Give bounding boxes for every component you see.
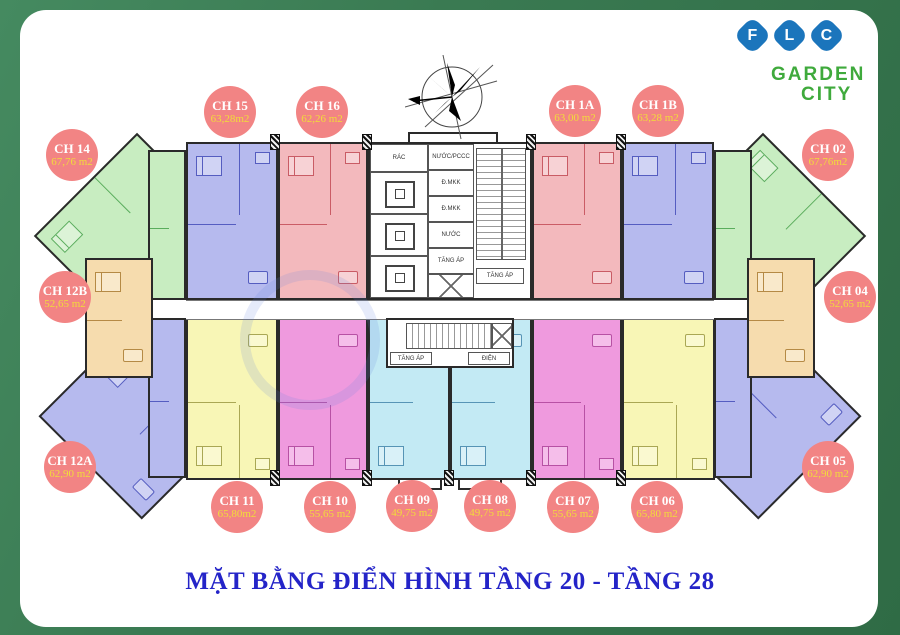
unit-badge-ch10: CH 1055,65 m2	[304, 481, 356, 533]
unit-id: CH 16	[304, 99, 340, 114]
unit-area: 62,26 m2	[301, 114, 343, 126]
bed-shape	[460, 446, 486, 466]
unit-area: 63,00 m2	[554, 113, 596, 125]
staircase	[406, 323, 492, 349]
unit-id: CH 14	[54, 142, 90, 157]
trash-room: RÁC	[370, 144, 428, 172]
partition-line	[370, 402, 413, 403]
unit-badge-ch09: CH 0949,75 m2	[386, 480, 438, 532]
unit-id: CH 12A	[47, 454, 92, 469]
unit-id: CH 1A	[556, 98, 595, 113]
logo-letter: F	[748, 27, 758, 45]
unit-id: CH 06	[639, 494, 675, 509]
core-bottom: TĂNG ÁP ĐIỆN	[386, 318, 514, 368]
bathroom-shape	[692, 458, 707, 470]
shaft-water-pccc: NƯỚC/PCCC	[428, 144, 474, 170]
unit-badge-ch16: CH 1662,26 m2	[296, 86, 348, 138]
partition-line	[749, 320, 784, 321]
core-top: RÁC NƯỚC/PCCC Đ.MKK Đ.MKK NƯỚC TĂNG ÁP T…	[368, 142, 532, 300]
partition-line	[716, 228, 735, 229]
partition-line	[786, 194, 822, 230]
pillar	[270, 134, 280, 150]
partition-line	[534, 224, 581, 225]
unit-badge-ch1b: CH 1B63,28 m2	[632, 85, 684, 137]
partition-line	[330, 144, 331, 215]
unit-badge-ch08: CH 0849,75 m2	[464, 480, 516, 532]
unit-id: CH 02	[810, 142, 846, 157]
unit-area: 63,28m2	[211, 114, 250, 126]
apartment-ch12b	[85, 258, 153, 378]
unit-badge-ch12a: CH 12A62,90 m2	[44, 441, 96, 493]
partition-line	[150, 228, 169, 229]
elevator-icon	[370, 214, 428, 256]
unit-area: 49,75 m2	[469, 508, 511, 520]
bathroom-shape	[599, 152, 614, 164]
logo-garden-text: GARDEN	[771, 64, 865, 86]
bed-shape	[95, 272, 121, 292]
unit-badge-ch05: CH 0562,90 m2	[802, 441, 854, 493]
bed-shape	[196, 156, 222, 176]
table-shape	[132, 478, 155, 501]
logo-city-text: CITY	[801, 84, 852, 106]
bed-shape	[51, 220, 84, 253]
electric-room: ĐIỆN	[468, 352, 510, 365]
unit-area: 52,65 m2	[829, 299, 871, 311]
unit-badge-ch02: CH 0267,76m2	[802, 129, 854, 181]
partition-line	[188, 402, 236, 403]
unit-badge-ch04: CH 0452,65 m2	[824, 271, 876, 323]
unit-id: CH 08	[472, 493, 508, 508]
apartment-ch1a	[532, 142, 622, 300]
watermark-ring	[240, 270, 380, 410]
pillar	[616, 134, 626, 150]
table-shape	[123, 349, 143, 362]
table-shape	[820, 403, 843, 426]
partition-line	[534, 402, 581, 403]
bed-shape	[288, 446, 314, 466]
unit-area: 62,90 m2	[49, 469, 91, 481]
partition-line	[624, 402, 673, 403]
table-shape	[592, 271, 612, 284]
logo-tile-l: L	[770, 16, 808, 54]
pressure-room: TĂNG ÁP	[476, 268, 524, 284]
unit-area: 55,65 m2	[309, 509, 351, 521]
unit-area: 65,80m2	[218, 509, 257, 521]
partition-line	[676, 405, 677, 478]
partition-line	[716, 401, 735, 402]
bathroom-shape	[255, 458, 270, 470]
staircase	[476, 148, 526, 260]
apartment-ch06	[622, 318, 715, 480]
unit-id: CH 12B	[43, 284, 87, 299]
unit-id: CH 1B	[639, 98, 677, 113]
logo-tile-f: F	[733, 16, 771, 54]
unit-area: 52,65 m2	[44, 299, 86, 311]
shaft-dmkk: Đ.MKK	[428, 170, 474, 196]
pillar	[362, 470, 372, 486]
partition-line	[452, 402, 495, 403]
partition-line	[87, 320, 122, 321]
unit-badge-ch06: CH 0665,80 m2	[631, 481, 683, 533]
logo-letter: L	[785, 27, 795, 45]
partition-line	[624, 224, 672, 225]
shaft-pressure: TĂNG ÁP	[428, 248, 474, 274]
unit-area: 55,65 m2	[552, 509, 594, 521]
bed-shape	[542, 446, 568, 466]
partition-line	[150, 401, 169, 402]
pillar	[270, 470, 280, 486]
partition-line	[95, 177, 131, 213]
compass-rose-icon	[405, 55, 500, 140]
bed-shape	[378, 446, 404, 466]
table-shape	[685, 334, 705, 347]
unit-area: 62,90 m2	[807, 469, 849, 481]
partition-line	[239, 405, 240, 478]
partition-line	[675, 144, 676, 215]
partition-line	[584, 144, 585, 215]
logo-tile-c: C	[807, 16, 845, 54]
apartment-ch04	[747, 258, 815, 378]
bathroom-shape	[345, 458, 360, 470]
pillar	[526, 134, 536, 150]
shaft-water: NƯỚC	[428, 222, 474, 248]
partition-line	[584, 405, 585, 478]
page-title: MẶT BẰNG ĐIỂN HÌNH TẦNG 20 - TẦNG 28	[0, 568, 900, 596]
bed-shape	[542, 156, 568, 176]
unit-id: CH 04	[832, 284, 868, 299]
bathroom-shape	[255, 152, 270, 164]
table-shape	[785, 349, 805, 362]
flc-garden-city-logo: F L C GARDEN CITY	[735, 12, 885, 107]
bathroom-shape	[599, 458, 614, 470]
pillar	[526, 470, 536, 486]
unit-badge-ch15: CH 1563,28m2	[204, 86, 256, 138]
bed-shape	[632, 156, 658, 176]
partition-line	[239, 144, 240, 215]
bed-shape	[757, 272, 783, 292]
pillar	[362, 134, 372, 150]
unit-badge-ch07: CH 0755,65 m2	[547, 481, 599, 533]
unit-badge-ch11: CH 1165,80m2	[211, 481, 263, 533]
partition-line	[280, 224, 327, 225]
unit-id: CH 11	[219, 494, 254, 509]
elevator-icon	[370, 172, 428, 214]
shaft-dmkk: Đ.MKK	[428, 196, 474, 222]
bathroom-shape	[345, 152, 360, 164]
partition-line	[330, 405, 331, 478]
table-shape	[592, 334, 612, 347]
apartment-ch12a-room	[148, 318, 186, 478]
unit-area: 65,80 m2	[636, 509, 678, 521]
apartment-ch1b	[622, 142, 714, 300]
unit-badge-ch14: CH 1467,76 m2	[46, 129, 98, 181]
unit-id: CH 07	[555, 494, 591, 509]
pillar	[444, 470, 454, 486]
elevator-icon	[370, 256, 428, 298]
unit-area: 67,76m2	[809, 157, 848, 169]
unit-id: CH 10	[312, 494, 348, 509]
unit-id: CH 09	[394, 493, 430, 508]
unit-badge-ch1a: CH 1A63,00 m2	[549, 85, 601, 137]
bed-shape	[196, 446, 222, 466]
unit-id: CH 15	[212, 99, 248, 114]
unit-badge-ch12b: CH 12B52,65 m2	[39, 271, 91, 323]
shaft-x-icon	[428, 274, 474, 298]
pillar	[616, 470, 626, 486]
unit-area: 63,28 m2	[637, 113, 679, 125]
bed-shape	[632, 446, 658, 466]
bed-shape	[288, 156, 314, 176]
bathroom-shape	[691, 152, 706, 164]
apartment-ch14-room	[148, 150, 186, 300]
unit-area: 67,76 m2	[51, 157, 93, 169]
table-shape	[684, 271, 704, 284]
unit-id: CH 05	[810, 454, 846, 469]
apartment-ch15	[186, 142, 278, 300]
unit-area: 49,75 m2	[391, 508, 433, 520]
partition-line	[188, 224, 236, 225]
apartment-ch07	[532, 318, 622, 480]
shaft-x-icon	[492, 323, 512, 349]
table-shape	[248, 271, 268, 284]
pressure-room: TĂNG ÁP	[390, 352, 432, 365]
logo-letter: C	[821, 27, 833, 45]
